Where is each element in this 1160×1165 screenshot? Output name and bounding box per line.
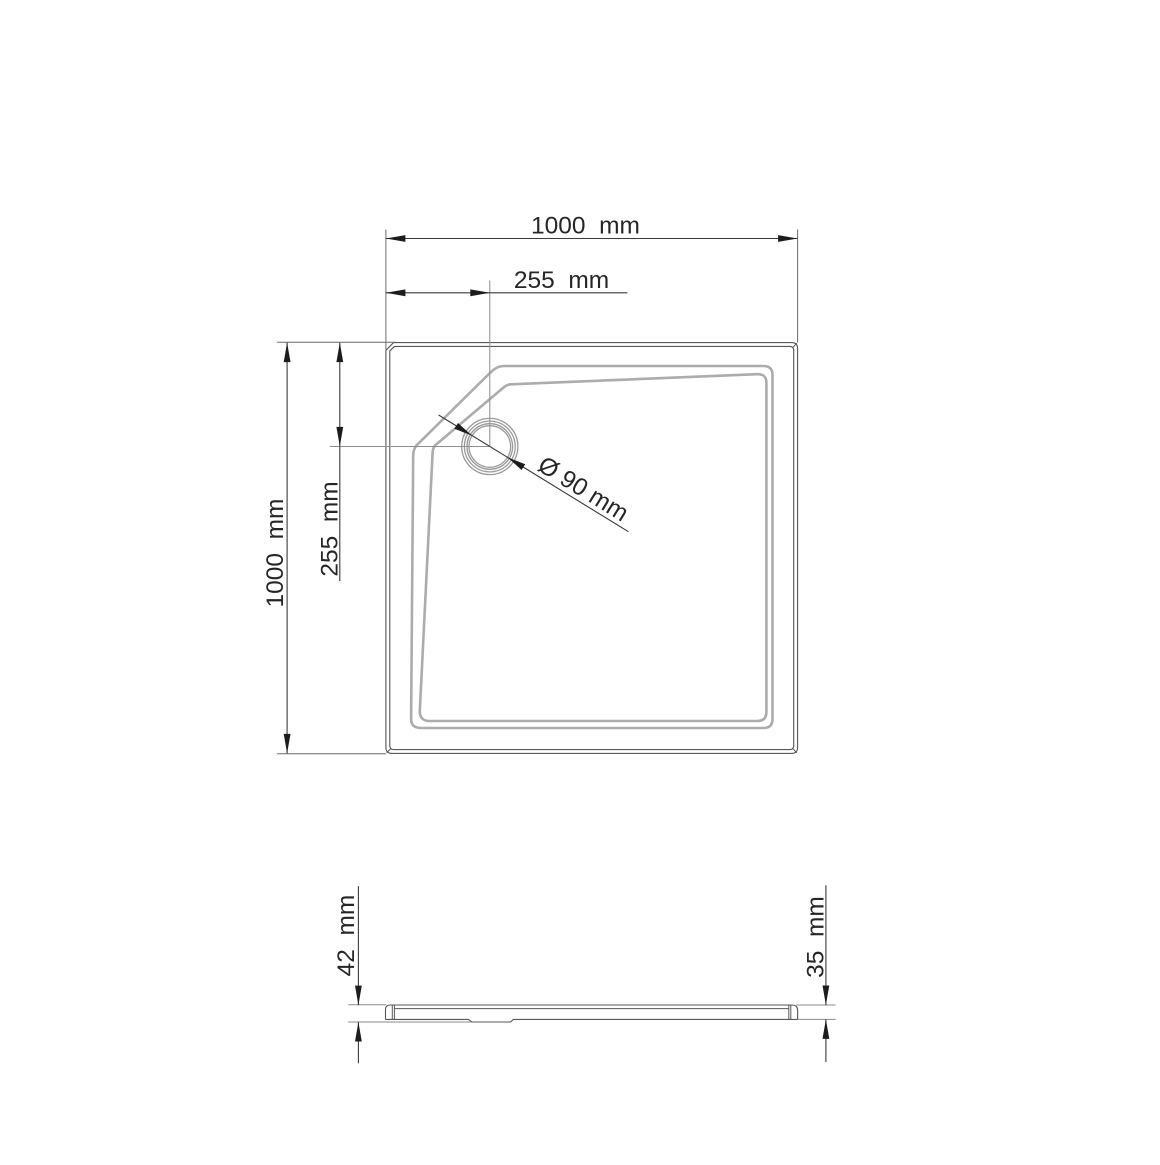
svg-text:35 mm: 35 mm [803, 896, 830, 978]
svg-text:255 mm: 255 mm [317, 481, 344, 576]
svg-text:42 mm: 42 mm [333, 895, 360, 977]
svg-text:255 mm: 255 mm [514, 267, 609, 294]
svg-text:1000 mm: 1000 mm [531, 213, 640, 240]
svg-text:1000 mm: 1000 mm [262, 499, 289, 608]
